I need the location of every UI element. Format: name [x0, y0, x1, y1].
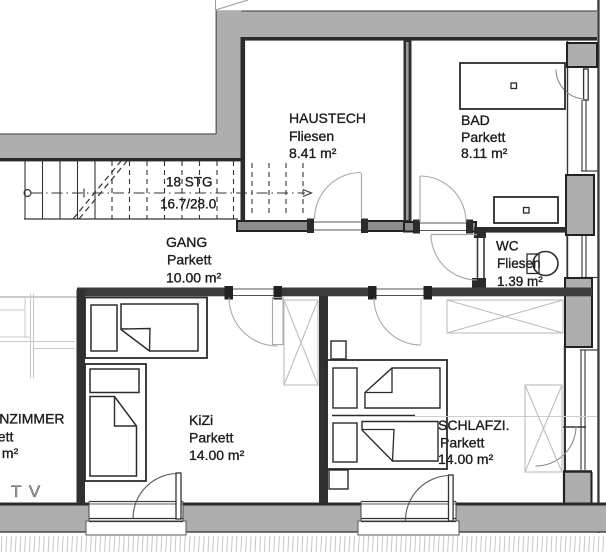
svg-text:KiZi: KiZi [189, 412, 213, 428]
svg-text:16.7/28.0: 16.7/28.0 [160, 197, 216, 212]
svg-text:TV: TV [11, 482, 48, 501]
svg-text:Parkett: Parkett [0, 429, 13, 445]
svg-text:14.00 m²: 14.00 m² [0, 445, 19, 461]
svg-text:Parkett: Parkett [189, 430, 233, 446]
svg-text:8.41 m²: 8.41 m² [289, 145, 337, 161]
svg-text:BAD: BAD [461, 112, 490, 128]
svg-text:WOHNZIMMER: WOHNZIMMER [0, 411, 65, 427]
svg-text:8.11 m²: 8.11 m² [461, 145, 508, 161]
svg-text:Fliesen: Fliesen [289, 128, 334, 144]
svg-text:18 STG: 18 STG [166, 175, 213, 190]
svg-text:Parkett: Parkett [167, 252, 211, 268]
svg-text:10.00 m²: 10.00 m² [166, 270, 222, 286]
svg-text:HAUSTECH: HAUSTECH [289, 110, 366, 126]
svg-text:Parkett: Parkett [461, 129, 505, 145]
svg-text:1.39 m²: 1.39 m² [497, 274, 543, 289]
svg-text:GANG: GANG [166, 234, 207, 250]
svg-text:14.00 m²: 14.00 m² [189, 447, 245, 463]
svg-text:WC: WC [496, 239, 519, 254]
svg-text:SCHLAFZI.: SCHLAFZI. [438, 417, 510, 433]
